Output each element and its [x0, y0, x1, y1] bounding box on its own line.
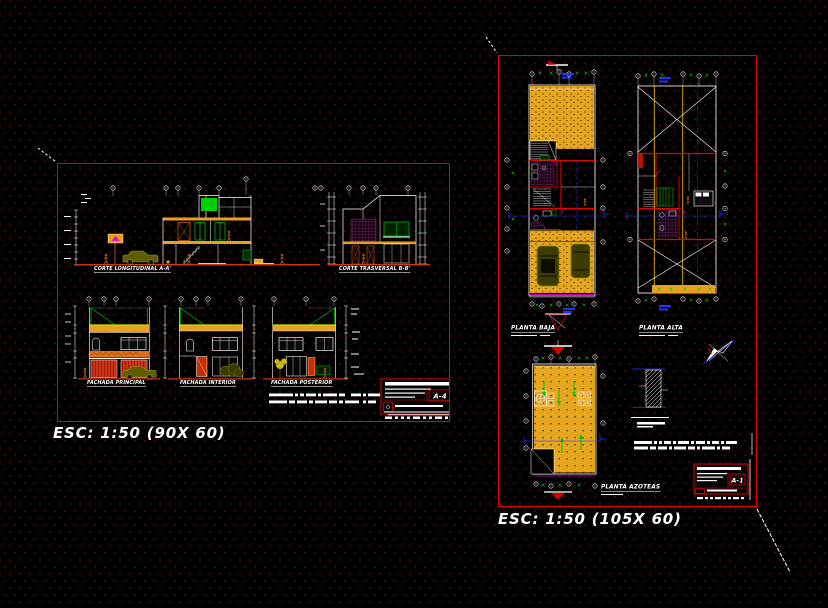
cornice-band: [89, 351, 149, 358]
planta-azoteas-label[interactable]: PLANTA AZOTEAS: [601, 484, 660, 492]
sheet-elevations-sections[interactable]: A-4 CORTE LONGITUDINAL A-A' CORTE TRASVE…: [57, 163, 450, 422]
label-scale-bar: [540, 335, 550, 336]
stair-section: [184, 246, 199, 264]
green-window: [383, 222, 410, 238]
title-block[interactable]: A-1: [694, 459, 750, 500]
sheet-code: A-4: [432, 393, 446, 401]
right-sheet-drawing[interactable]: A-1: [499, 56, 756, 506]
dimension-string-left: [74, 210, 78, 265]
label-scale-bar: [601, 494, 623, 495]
car-side-view: [123, 251, 158, 265]
fachada-principal-label[interactable]: FACHADA PRINCIPAL: [87, 380, 146, 387]
wall-detail[interactable]: [631, 369, 669, 428]
label-scale-bar: [639, 335, 665, 336]
corte-trasversal-label[interactable]: CORTE TRASVERSAL B-B': [339, 266, 410, 273]
section-marker-icon: [546, 60, 568, 70]
street-sign: [108, 234, 123, 264]
plot-notes-text: [634, 441, 737, 450]
bed: [694, 191, 713, 206]
cad-canvas: A-4 CORTE LONGITUDINAL A-A' CORTE TRASVE…: [0, 0, 828, 608]
upper-window: [121, 338, 146, 350]
floor-slab: [163, 241, 251, 244]
level-annotations: [64, 194, 91, 259]
drawing-fachada-posterior[interactable]: [252, 306, 348, 380]
title-block[interactable]: A-4: [381, 379, 449, 419]
sheet-floor-plans[interactable]: A-1 PLANTA BAJA PLANTA ALTA PLANTA AZOTE…: [498, 55, 757, 507]
stairs-mid: [533, 189, 555, 207]
green-doors: [195, 223, 225, 241]
drawing-fachada-interior[interactable]: [163, 306, 253, 380]
left-sheet-scale-note: ESC: 1:50 (90X 60): [53, 424, 225, 442]
parapet-lines: [91, 308, 148, 326]
tree: [275, 359, 288, 379]
closet: [657, 188, 673, 206]
double-height-void: [638, 87, 716, 288]
plot-notes-text: [269, 394, 380, 404]
floor-slab: [163, 218, 251, 221]
lower-roof-void: [531, 449, 554, 474]
patio-hatch: [530, 86, 594, 149]
label-scale-bar: [511, 335, 537, 336]
fachada-posterior-label[interactable]: FACHADA POSTERIOR: [271, 380, 332, 387]
back-door: [308, 358, 315, 376]
drawing-planta-baja[interactable]: [505, 60, 610, 330]
corte-longitudinal-label[interactable]: CORTE LONGITUDINAL A-A': [94, 266, 171, 273]
stair-tower-panel: [201, 198, 217, 211]
drawing-planta-alta[interactable]: [627, 72, 727, 311]
green-fixture: [243, 250, 251, 260]
fachada-interior-label[interactable]: FACHADA INTERIOR: [180, 380, 236, 387]
orange-door: [178, 223, 190, 241]
section-marker-icon: [544, 340, 572, 355]
drawing-corte-trasversal[interactable]: [313, 186, 430, 266]
stairs-upper: [643, 190, 654, 207]
section-marker-icon: [544, 492, 572, 500]
drawing-planta-azoteas[interactable]: [524, 340, 606, 500]
planta-alta-label[interactable]: PLANTA ALTA: [639, 325, 683, 333]
north-arrow-icon: [703, 340, 735, 364]
dimension-string-right: [344, 306, 364, 379]
facade-grid-bubbles: [87, 297, 336, 306]
sheet-code: A-1: [730, 477, 743, 485]
tiled-wall-hatch: [351, 219, 376, 241]
arched-window: [93, 338, 100, 350]
bathroom-fixtures: [531, 210, 556, 228]
bathroom-tile-hatch: [657, 209, 678, 238]
label-scale-bar: [668, 335, 678, 336]
drawing-fachada-principal[interactable]: [65, 306, 160, 380]
planta-baja-label[interactable]: PLANTA BAJA: [511, 325, 555, 333]
right-sheet-scale-note: ESC: 1:50 (105X 60): [498, 510, 682, 528]
drawing-corte-longitudinal[interactable]: [64, 177, 320, 266]
